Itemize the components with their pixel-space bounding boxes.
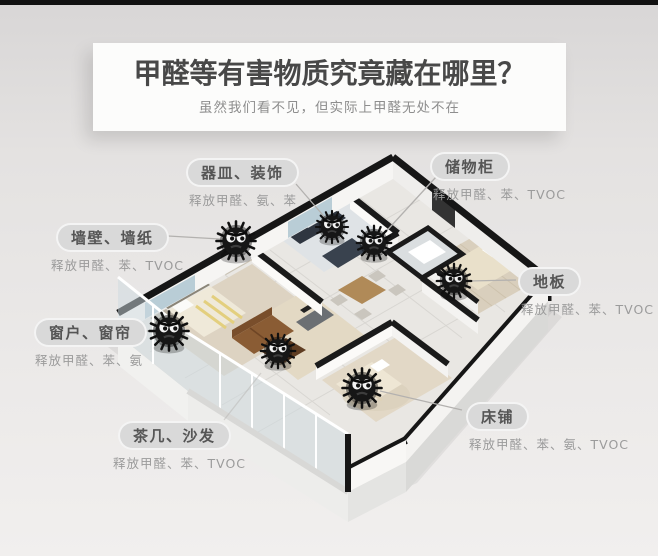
dust-monster-storage [357, 226, 392, 263]
label-pill-coffee-table-sofa: 茶几、沙发 [118, 421, 231, 450]
leader-vessels [296, 184, 328, 221]
living-room-rug [236, 290, 368, 380]
emission-text-floor: 释放甲醛、苯、TVOC [518, 299, 654, 318]
emission-text-windows-curtains: 释放甲醛、苯、氨 [32, 350, 147, 369]
emission-text-storage-cabinet: 释放甲醛、苯、TVOC [430, 184, 566, 203]
dust-monster-bed [342, 368, 381, 410]
kitchen-floor [282, 202, 390, 272]
callout-windows-curtains: 窗户、窗帘 释放甲醛、苯、氨 [32, 318, 147, 369]
master-bedroom-floor [150, 264, 322, 376]
kitchen-counter [284, 206, 368, 268]
tv-stand [296, 299, 334, 331]
callout-walls-wallpaper: 墙壁、墙纸 释放甲醛、苯、TVOC [48, 223, 184, 274]
sofa [232, 307, 294, 354]
bottom-bed [336, 359, 402, 406]
emission-text-bed: 释放甲醛、苯、氨、TVOC [466, 434, 629, 453]
emission-text-coffee-table-sofa: 释放甲醛、苯、TVOC [110, 453, 246, 472]
dust-monster-vessels [316, 211, 348, 246]
emission-text-walls-wallpaper: 释放甲醛、苯、TVOC [48, 255, 184, 274]
dust-monster-floor [437, 264, 472, 301]
tile-grid [150, 197, 505, 432]
page-subtitle: 虽然我们看不见，但实际上甲醛无处不在 [93, 96, 566, 116]
label-pill-windows-curtains: 窗户、窗帘 [34, 318, 147, 347]
label-pill-bed: 床铺 [466, 402, 529, 431]
bathroom-block [388, 228, 462, 278]
callout-coffee-table-sofa: 茶几、沙发 释放甲醛、苯、TVOC [110, 421, 246, 472]
dust-monsters [149, 211, 471, 411]
leader-storage [381, 177, 436, 237]
dresser [150, 309, 176, 325]
callout-floor: 地板 释放甲醛、苯、TVOC [518, 267, 654, 318]
dust-monster-wall [216, 221, 255, 263]
right-bed [432, 243, 512, 290]
label-pill-floor: 地板 [518, 267, 581, 296]
bottom-bedroom-floor [322, 336, 452, 422]
label-pill-walls-wallpaper: 墙壁、墙纸 [56, 223, 169, 252]
emission-text-vessels-decor: 释放甲醛、氨、苯 [186, 190, 299, 209]
label-pill-vessels-decor: 器皿、装饰 [186, 158, 299, 187]
callout-vessels-decor: 器皿、装饰 释放甲醛、氨、苯 [186, 158, 299, 209]
infographic-stage: 甲醛等有害物质究竟藏在哪里？ 虽然我们看不见，但实际上甲醛无处不在 [0, 0, 658, 556]
master-bed [164, 282, 246, 337]
interior-walls [252, 195, 478, 380]
label-pill-storage-cabinet: 储物柜 [430, 152, 510, 181]
dust-monster-window [149, 311, 188, 353]
leader-floor [469, 280, 516, 281]
coffee-table [262, 338, 306, 364]
leader-sofa [224, 373, 261, 420]
top-border-bar [0, 0, 658, 5]
leader-bed [380, 391, 462, 410]
bottom-bedroom-rug [342, 379, 410, 411]
wardrobe [208, 245, 256, 275]
dust-monster-sofa [261, 334, 296, 371]
page-title: 甲醛等有害物质究竟藏在哪里？ [93, 57, 566, 91]
title-card: 甲醛等有害物质究竟藏在哪里？ 虽然我们看不见，但实际上甲醛无处不在 [93, 43, 566, 131]
callout-bed: 床铺 释放甲醛、苯、氨、TVOC [466, 402, 629, 453]
leader-lines [146, 177, 516, 420]
right-bedroom-planks [432, 244, 520, 306]
callout-storage-cabinet: 储物柜 释放甲醛、苯、TVOC [430, 152, 566, 203]
dining-table-set [330, 270, 406, 320]
